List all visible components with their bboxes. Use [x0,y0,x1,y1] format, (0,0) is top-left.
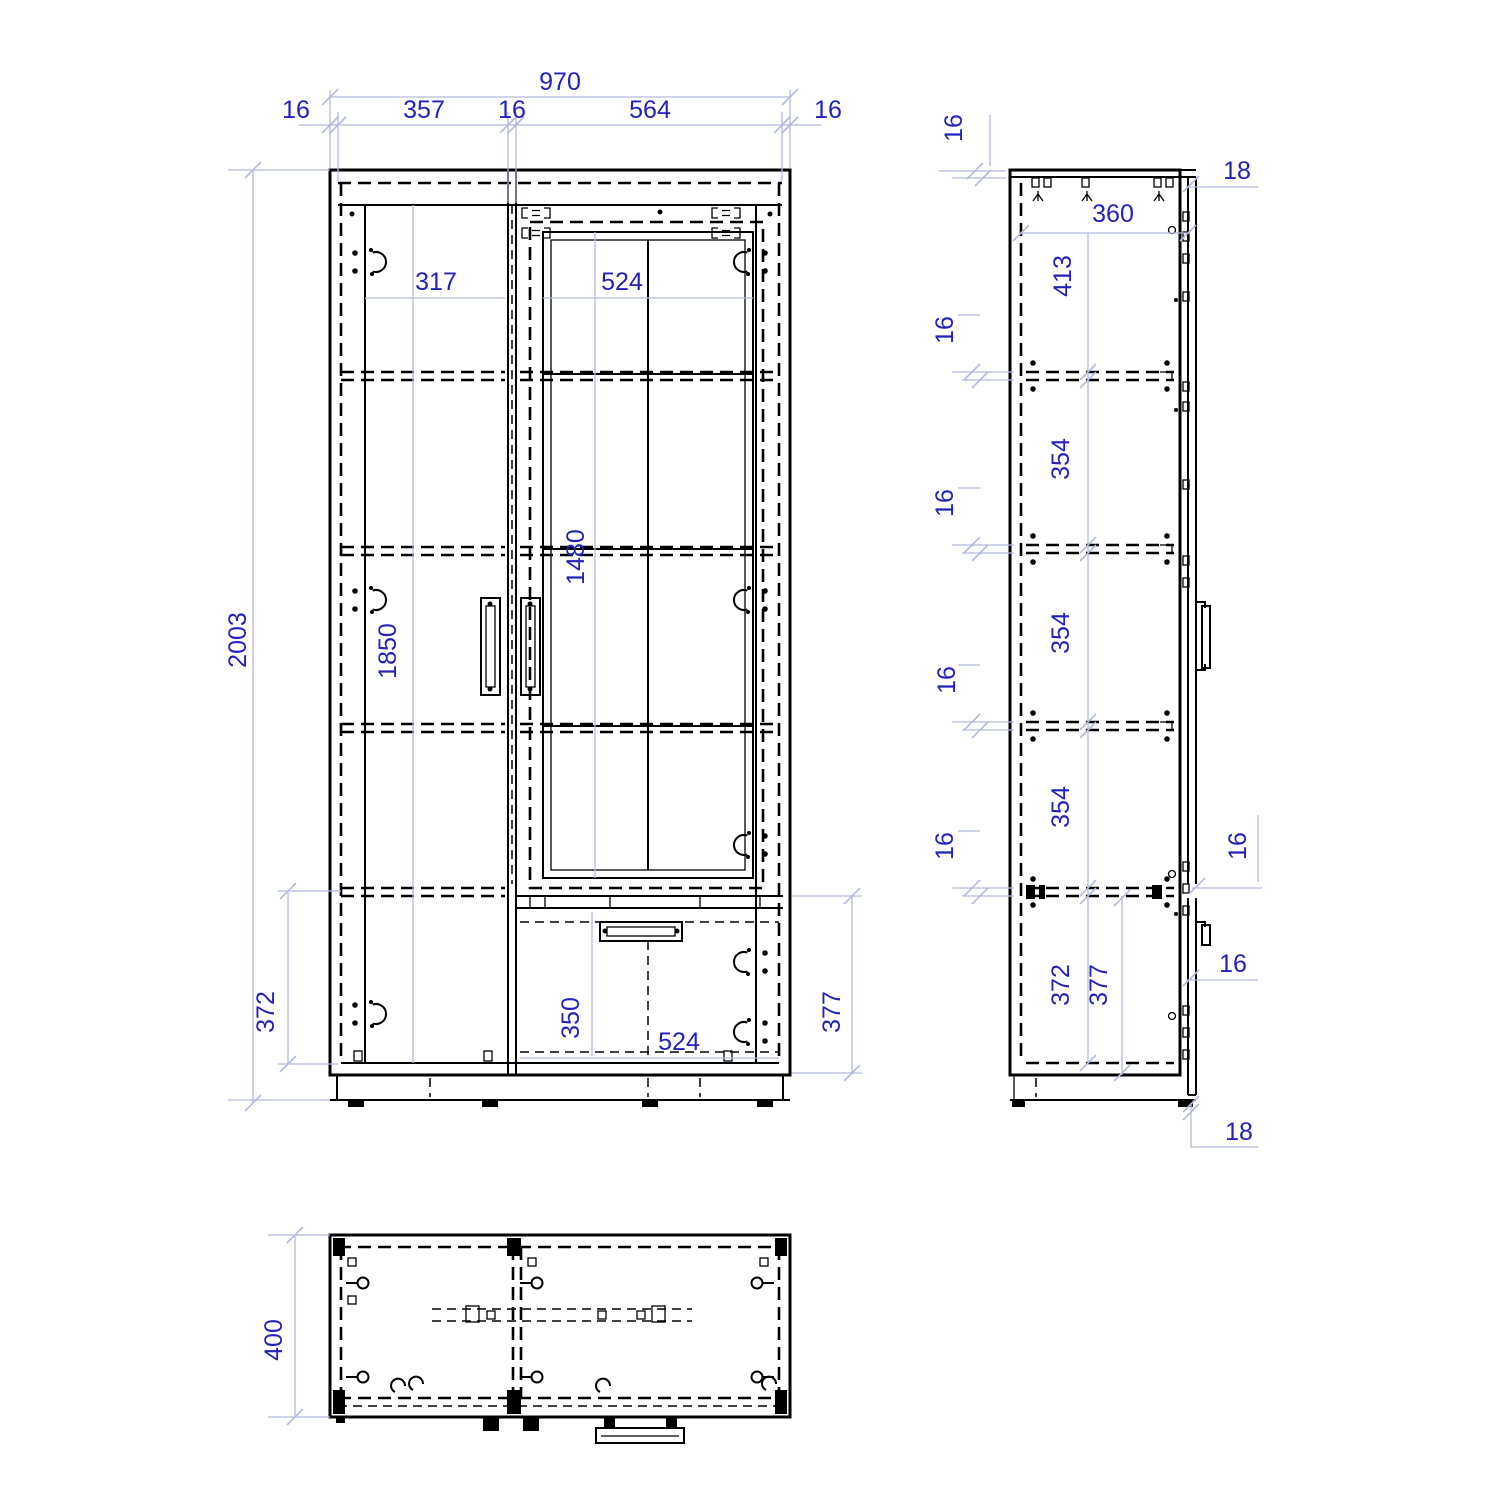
dim-glass-height: 1480 [562,529,590,585]
dim-right-opening: 564 [629,96,671,124]
dowel-icon [346,1372,369,1383]
dim-section-2: 354 [1047,612,1075,654]
dowel-icon [752,1278,775,1289]
hinge-icon [734,831,768,859]
dim-right-panel: 16 [814,96,842,124]
dim-top-section: 413 [1049,255,1077,297]
technical-drawing: 970 16 357 16 564 16 2003 372 377 [0,0,1500,1500]
dim-shelf-16-2: 16 [931,488,1014,561]
dim-depth: 400 [260,1319,288,1361]
dim-door-front-offset: 18 [1223,157,1251,185]
dim-glass-door-width: 524 [601,268,643,296]
svg-text:16: 16 [931,489,959,517]
top-view-dimensions: 400 [260,1227,330,1425]
side-top-fittings [1032,178,1173,201]
hinge-icon [352,586,386,614]
dim-section-3: 354 [1047,786,1075,828]
dim-shelf-16-4: 16 [931,831,1014,904]
dowel-icon [346,1278,369,1289]
hinge-icon [352,1000,386,1028]
dim-shelf-16-1: 16 [931,315,1014,388]
dim-top-panel: 16 [940,114,968,142]
cam-fitting-icon [712,208,740,218]
svg-text:16: 16 [931,316,959,344]
dim-left-panel: 16 [282,96,310,124]
svg-text:16: 16 [931,832,959,860]
dim-shelf-width: 317 [415,268,457,296]
dim-overall-height: 2003 [224,612,252,668]
dim-overall-width: 970 [539,68,581,96]
dim-door-gap: 16 [1224,832,1252,860]
cam-fitting-icon [522,208,550,218]
dim-partition: 16 [498,96,526,124]
dim-front-gap: 16 [1219,950,1247,978]
dim-left-bottom-section: 372 [252,991,280,1033]
top-view [330,1235,790,1443]
dim-section-1: 354 [1047,438,1075,480]
dim-shelf-16-3: 16 [933,665,1014,738]
dim-right-bottom-section: 377 [818,991,846,1033]
hinge-icon [352,248,386,276]
dim-bottom-section-front: 377 [1085,964,1113,1006]
dim-inner-depth: 360 [1092,200,1134,228]
dim-drawer-height: 350 [557,997,585,1039]
dim-door-height: 1850 [374,623,402,679]
dowel-icon [520,1278,543,1289]
dim-bottom-offset: 18 [1225,1118,1253,1146]
side-view-dimensions: 16 18 360 413 354 354 354 372 377 16 [931,114,1262,1148]
svg-text:16: 16 [933,666,961,694]
dowel-icon [520,1372,543,1383]
dim-bottom-section-back: 372 [1047,964,1075,1006]
cad-sheet: 970 16 357 16 564 16 2003 372 377 [0,0,1500,1500]
hinge-icon [734,1018,768,1046]
hinge-icon [734,948,768,976]
dim-drawer-width: 524 [658,1028,700,1056]
dim-left-opening: 357 [403,96,445,124]
